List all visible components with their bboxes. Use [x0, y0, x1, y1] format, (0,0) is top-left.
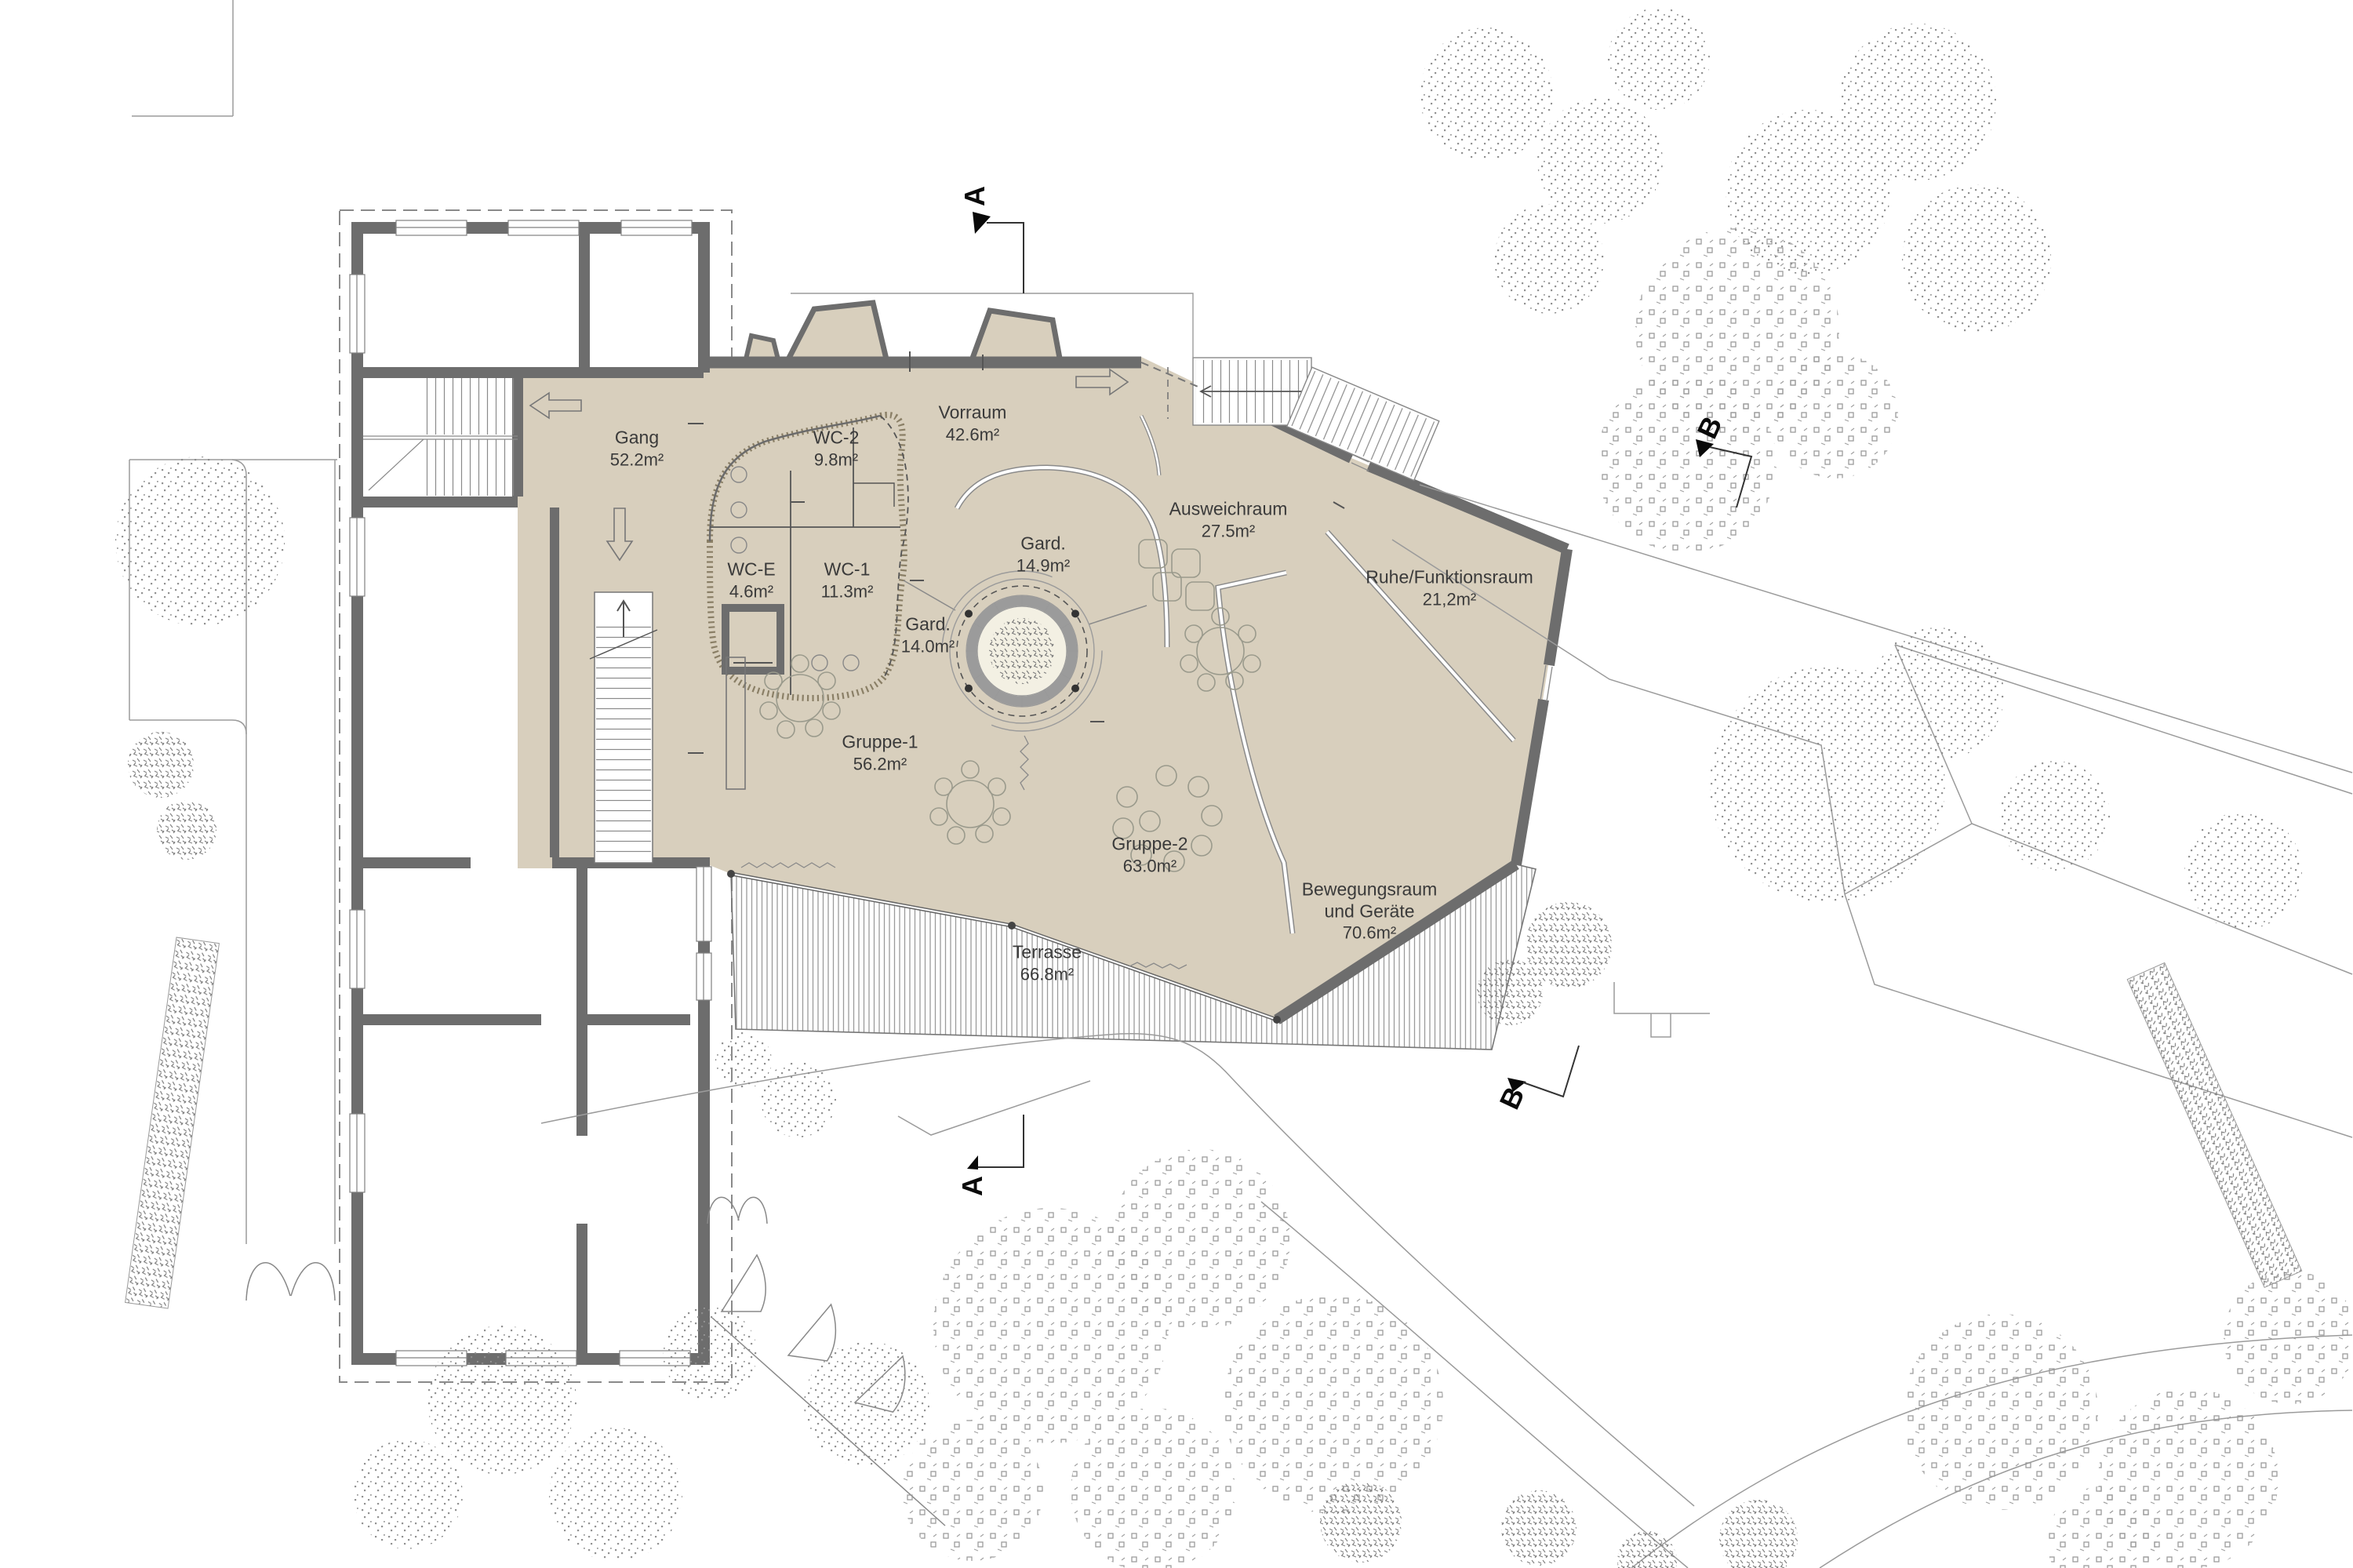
room-label-gard14-0: Gard.14.0m²	[901, 613, 955, 657]
section-a-bottom-arrow	[967, 1155, 978, 1170]
room-label-vorraum: Vorraum42.6m²	[939, 402, 1007, 445]
atrium-tree	[989, 618, 1055, 684]
room-label-gang: Gang52.2m²	[610, 427, 664, 470]
side-gate	[707, 1197, 767, 1224]
skylight-bump	[971, 311, 1060, 362]
section-letter-a-bottom: A	[956, 1176, 989, 1196]
room-label-wc2: WC-29.8m²	[813, 427, 860, 470]
room-label-wc1: WC-111.3m²	[821, 558, 874, 602]
room-label-bewegungsraum: Bewegungsraumund Geräte70.6m²	[1302, 879, 1438, 944]
room-label-terrasse: Terrasse66.8m²	[1013, 941, 1082, 984]
stair-to-basement	[590, 592, 657, 863]
site-plan: Gang52.2m² WC-29.8m² WC-E4.6m² WC-111.3m…	[0, 0, 2353, 1568]
elevator	[726, 608, 780, 671]
section-letter-a-top: A	[958, 186, 991, 206]
room-label-gruppe1: Gruppe-156.2m²	[842, 731, 918, 774]
room-label-ruhe: Ruhe/Funktionsraum21,2m²	[1366, 566, 1533, 609]
garden-gate	[246, 1263, 335, 1301]
room-label-wce: WC-E4.6m²	[727, 558, 775, 602]
room-label-gard14-9: Gard.14.9m²	[1016, 533, 1070, 576]
room-label-gruppe2: Gruppe-263.0m²	[1111, 833, 1187, 876]
plan-drawing	[0, 0, 2353, 1568]
skylight-bump	[787, 303, 887, 362]
room-label-ausweichraum: Ausweichraum27.5m²	[1169, 498, 1288, 541]
